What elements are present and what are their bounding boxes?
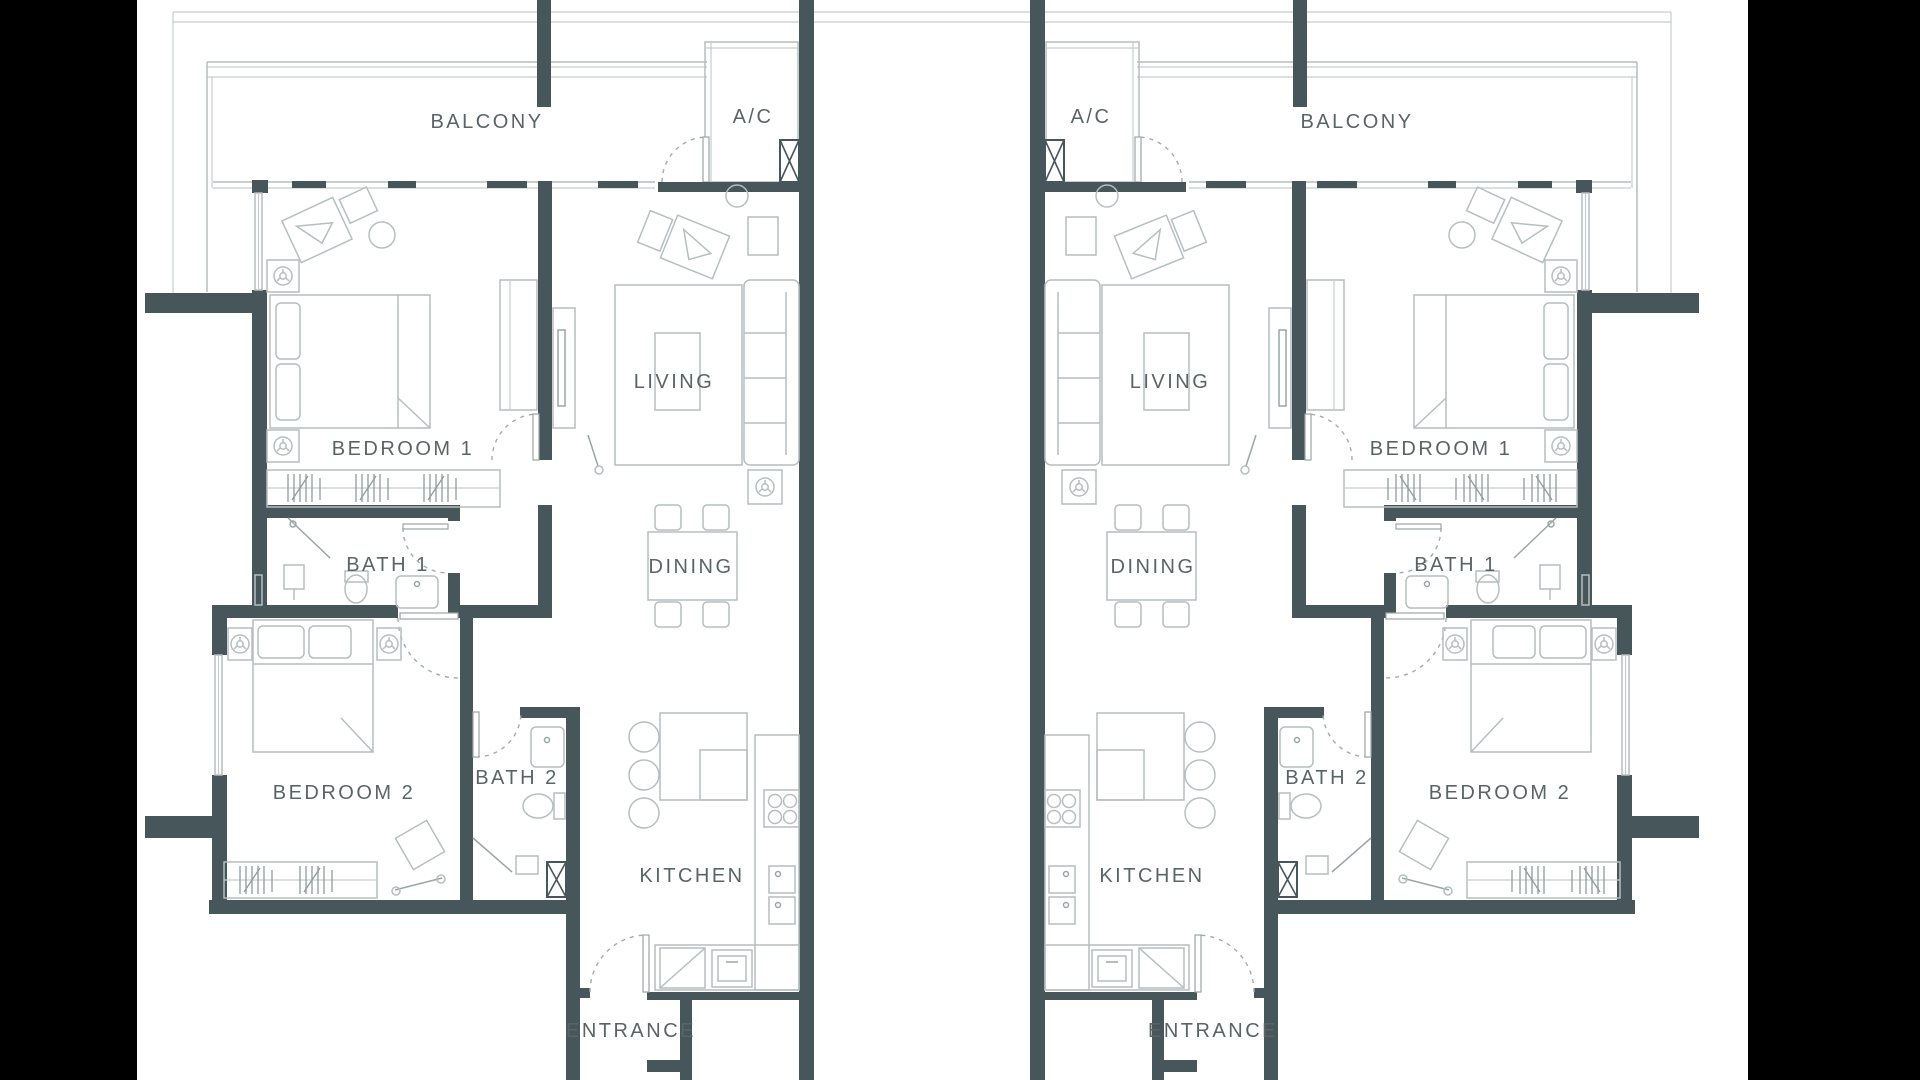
room-label-dining: DINING <box>649 556 734 578</box>
room-label-ac: A/C <box>1071 106 1112 128</box>
room-label-bath1: BATH 1 <box>1414 554 1498 576</box>
room-label-kitchen: KITCHEN <box>1099 865 1204 887</box>
room-label-bedroom2: BEDROOM 2 <box>1429 782 1572 804</box>
room-label-bath1: BATH 1 <box>346 554 430 576</box>
floor-plan: BALCONY A/C LIVING BEDROOM 1 BATH 1 DINI… <box>0 0 1920 1080</box>
room-label-kitchen: KITCHEN <box>639 865 744 887</box>
room-label-living: LIVING <box>634 371 715 393</box>
room-label-bedroom2: BEDROOM 2 <box>273 782 416 804</box>
room-label-bedroom1: BEDROOM 1 <box>332 438 475 460</box>
floor-plan-page: BALCONY A/C LIVING BEDROOM 1 BATH 1 DINI… <box>0 0 1920 1080</box>
room-label-entrance: ENTRANCE <box>566 1020 696 1042</box>
room-label-bedroom1: BEDROOM 1 <box>1370 438 1513 460</box>
room-label-balcony: BALCONY <box>430 111 543 133</box>
room-label-living: LIVING <box>1130 371 1211 393</box>
room-label-entrance: ENTRANCE <box>1148 1020 1278 1042</box>
room-label-balcony: BALCONY <box>1300 111 1413 133</box>
room-label-ac: A/C <box>733 106 774 128</box>
plan-paper <box>137 0 1748 1080</box>
room-label-dining: DINING <box>1111 556 1196 578</box>
room-label-bath2: BATH 2 <box>475 767 559 789</box>
room-label-bath2: BATH 2 <box>1285 767 1369 789</box>
